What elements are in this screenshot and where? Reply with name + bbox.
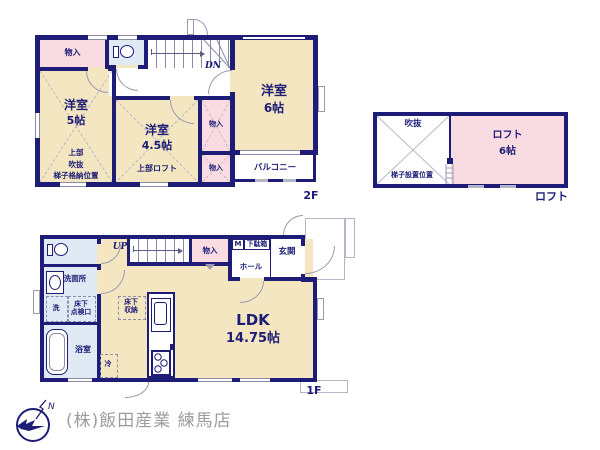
void-label: 吹抜 (377, 119, 449, 129)
loft-room-name: ロフト (451, 130, 564, 142)
closet-b-label: 物入 (202, 164, 230, 172)
wall (202, 151, 230, 155)
entrance-label: 玄関 (272, 247, 302, 257)
wall (44, 264, 97, 267)
top-door-leaf (187, 19, 194, 35)
washroom-label: 洗面所 (52, 274, 98, 283)
wall (564, 112, 568, 188)
meter-label: M (232, 240, 244, 248)
bathroom-label: 浴室 (68, 345, 98, 355)
wall (264, 277, 317, 281)
wall (228, 277, 240, 281)
storage-door-mark (205, 264, 215, 270)
casement-window (318, 86, 325, 112)
wall (40, 235, 44, 382)
wall (112, 96, 170, 100)
floor-storage-label: 床下 収納 (117, 298, 145, 315)
wall (373, 112, 568, 116)
sliding-door-window (240, 150, 300, 155)
room6-name: 洋室 (235, 84, 313, 100)
floor1-label: 1F (301, 384, 327, 397)
wall (97, 235, 101, 244)
window (68, 378, 92, 382)
ldk-name: LDK (193, 311, 313, 329)
window (240, 378, 270, 382)
ldk-size: 14.75帖 (193, 331, 313, 347)
compass-icon: N (12, 398, 64, 448)
top-door-arc (194, 19, 208, 35)
balcony-gap (283, 179, 296, 182)
bathtub-inner-icon (49, 333, 65, 371)
entrance-porch-step (345, 218, 355, 258)
stove-burners-icon (151, 350, 171, 376)
stair-arrow (134, 250, 180, 251)
storage-label: 物入 (40, 48, 105, 58)
ladder-note: 梯子設置位置 (374, 171, 450, 179)
window (243, 37, 305, 39)
wall (35, 67, 88, 71)
wall (301, 235, 305, 246)
room45-size: 4.5帖 (116, 139, 198, 152)
room5-size: 5帖 (40, 114, 112, 127)
compass-north-label: N (48, 402, 55, 412)
fridge-label: 冷 (100, 360, 116, 368)
kitchen-sink-basin (154, 302, 167, 325)
floor-plan-page: 物入 DN 洋室 5帖 上部 吹抜 梯子格納位置 洋室 4.5帖 上部ロフト 洋… (0, 0, 600, 450)
stair-arrow-tail (133, 246, 134, 252)
window (118, 35, 137, 40)
washer-label: 洗 (48, 304, 64, 312)
window (60, 182, 86, 187)
window (140, 182, 168, 187)
wall (105, 35, 109, 69)
toilet-bowl-icon (120, 45, 134, 58)
stair-arrow (152, 53, 202, 54)
toilet-bowl-icon (54, 243, 68, 256)
balcony-label: バルコニー (237, 163, 313, 173)
toilet-tank-icon (113, 46, 119, 58)
casement-window (33, 290, 40, 314)
closet-a-label: 物入 (202, 120, 230, 128)
stair-arrow-head (200, 51, 205, 57)
storage-label: 物入 (192, 246, 228, 255)
hall-label: ホール (232, 262, 270, 271)
window (88, 35, 107, 40)
loft-gap (468, 185, 484, 188)
stair-arrow-tail (151, 49, 152, 55)
wall (230, 35, 235, 70)
stairs-up-label: UP (108, 242, 132, 253)
casement-window (317, 298, 324, 320)
north-door-arc (283, 215, 303, 235)
window (198, 378, 232, 382)
wall (144, 35, 148, 69)
wall (300, 150, 313, 155)
loft-room-size: 6帖 (451, 146, 564, 158)
shoebox-label: 下駄箱 (244, 240, 270, 248)
wall (44, 322, 97, 325)
room6-size: 6帖 (235, 101, 313, 115)
hatch-label: 床下 点検口 (67, 300, 95, 317)
loft-gap (500, 185, 516, 188)
toilet-tank-icon (47, 244, 53, 256)
wall (127, 262, 232, 266)
garden-door-arc (125, 382, 149, 398)
wall (313, 278, 317, 382)
stairs-dn-label: DN (200, 61, 226, 72)
entrance-step-line (270, 239, 271, 278)
wall (138, 65, 148, 69)
room5-note: 上部 吹抜 梯子格納位置 (36, 147, 116, 182)
balcony-gap (255, 179, 268, 182)
company-name: (株)飯田産業 練馬店 (66, 406, 306, 431)
room45-name: 洋室 (116, 123, 198, 137)
loft-label: ロフト (524, 190, 568, 203)
room5-name: 洋室 (40, 98, 112, 112)
stair-arrow-head (178, 248, 183, 254)
room45-note: 上部ロフト (116, 164, 198, 174)
floor2-label: 2F (298, 189, 324, 202)
